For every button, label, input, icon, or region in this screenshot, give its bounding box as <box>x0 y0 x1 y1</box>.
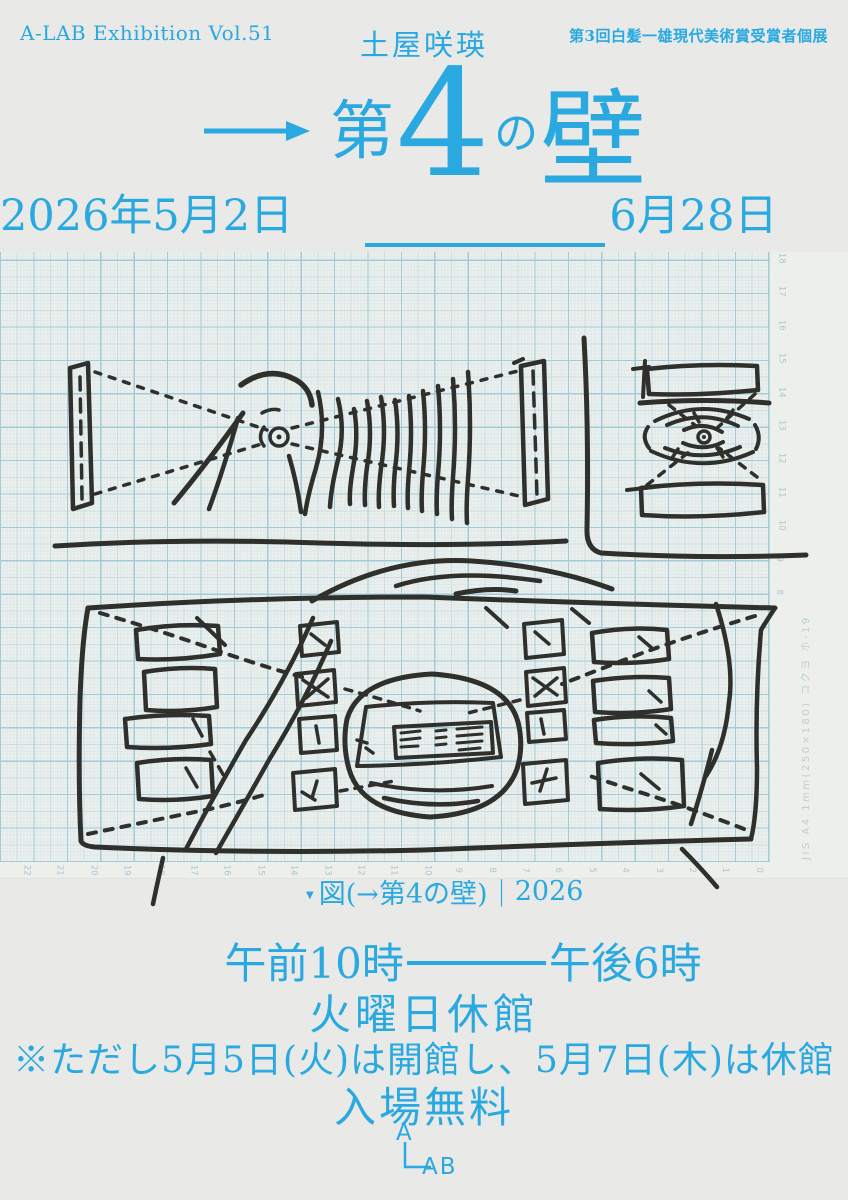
title-char-dai: 第 <box>330 80 394 172</box>
sketch-lower-room-scene <box>79 561 775 905</box>
logo-letters-ab: AB <box>422 1154 458 1180</box>
caption-separator: | <box>499 876 504 907</box>
caption-title: 図(→第4の壁) <box>319 872 488 911</box>
hours-rule <box>407 961 546 965</box>
sketch-upper-left-scene <box>55 359 566 546</box>
exhibition-poster: A-LAB Exhibition Vol.51 土屋咲瑛 第3回白髪一雄現代美術… <box>0 0 848 1200</box>
artwork-caption: ▼ 図(→第4の壁) | 2026 <box>306 872 583 911</box>
award-note: 第3回白髪一雄現代美術賞受賞者個展 <box>569 25 828 46</box>
title-char-four: 4 <box>396 50 490 198</box>
caption-year: 2026 <box>515 876 584 907</box>
sketch-upper-right-scene <box>627 361 769 516</box>
a-lab-logo: A AB <box>390 1120 470 1190</box>
hand-drawn-sketch <box>0 252 848 912</box>
long-arrow-icon <box>202 117 314 145</box>
title-char-no: の <box>494 97 538 161</box>
date-range-rule <box>365 243 606 247</box>
caption-marker-icon: ▼ <box>306 890 314 901</box>
title-block: 第 4 の 壁 <box>0 62 848 182</box>
